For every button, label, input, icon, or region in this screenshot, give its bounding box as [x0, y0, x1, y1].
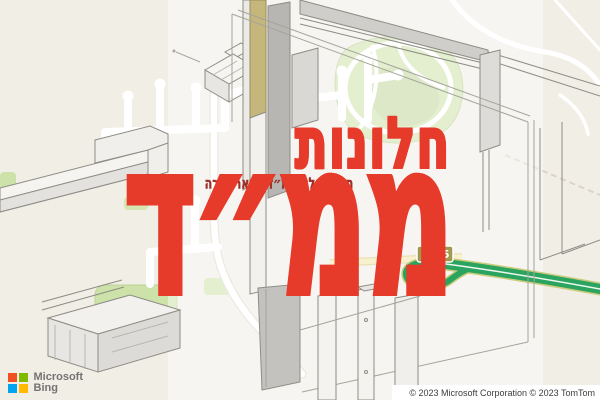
ms-square-yellow	[19, 384, 28, 393]
map-screenshot: 1095	[0, 0, 600, 400]
copyright-text: © 2023 Microsoft Corporation © 2023 TomT…	[409, 388, 595, 398]
map-attribution-bar: © 2023 Microsoft Corporation © 2023 TomT…	[392, 385, 600, 400]
transom-beam	[300, 0, 600, 96]
ms-square-green	[19, 373, 28, 382]
microsoft-logo-icon	[8, 373, 28, 393]
ms-square-blue	[8, 384, 17, 393]
bing-logo[interactable]: Microsoft Bing	[8, 372, 83, 394]
ms-square-red	[8, 373, 17, 382]
watermark-title-line2: ממ״ד	[123, 115, 451, 325]
bing-wordmark: Bing	[34, 383, 84, 394]
right-panel	[480, 50, 600, 260]
